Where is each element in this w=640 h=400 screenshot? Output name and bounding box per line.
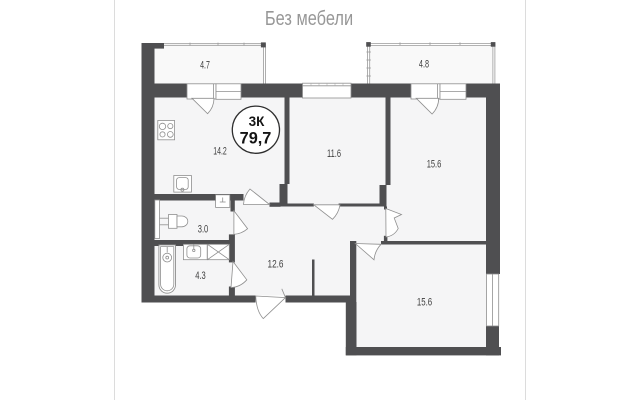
svg-text:79,7: 79,7	[240, 129, 272, 147]
svg-text:12.6: 12.6	[268, 259, 284, 271]
svg-text:4.3: 4.3	[195, 270, 206, 282]
svg-text:14.2: 14.2	[213, 146, 227, 158]
svg-text:Без мебели: Без мебели	[265, 6, 353, 29]
svg-text:4.8: 4.8	[419, 59, 429, 71]
svg-text:11.6: 11.6	[327, 148, 341, 160]
svg-text:3К: 3К	[249, 114, 266, 129]
svg-text:3.0: 3.0	[198, 224, 209, 236]
svg-text:15.6: 15.6	[417, 296, 432, 308]
svg-text:4.7: 4.7	[200, 60, 210, 72]
svg-text:15.6: 15.6	[427, 159, 442, 171]
